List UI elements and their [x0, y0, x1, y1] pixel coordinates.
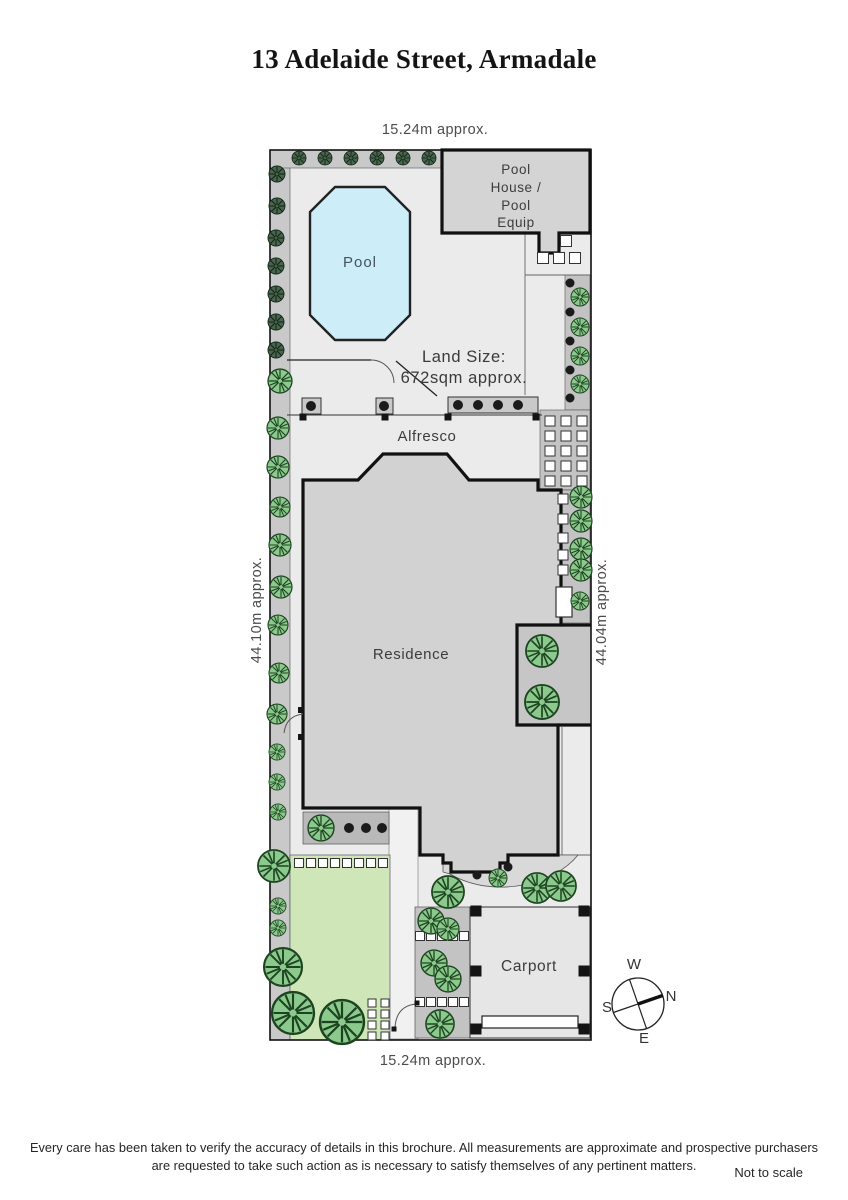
- dark-tree-icon: [370, 151, 384, 165]
- tree-icon: [269, 663, 289, 683]
- carport-slab: [482, 1016, 578, 1028]
- post-marker: [382, 414, 389, 421]
- tree-icon: [258, 850, 290, 882]
- paver-stone: [379, 859, 388, 868]
- site-plan-drawing: [0, 0, 848, 1200]
- shrub-dot: [361, 823, 371, 833]
- post-marker: [471, 906, 482, 917]
- tree-icon: [269, 744, 285, 760]
- paver-stone: [368, 1032, 376, 1040]
- tree-icon: [267, 704, 287, 724]
- post-marker: [445, 414, 452, 421]
- land-size-label: Land Size: 672sqm approx.: [354, 347, 574, 388]
- dimension-right: 44.04m approx.: [592, 512, 612, 712]
- dark-tree-icon: [292, 151, 306, 165]
- dark-tree-icon: [422, 151, 436, 165]
- compass-rose: [612, 978, 664, 1030]
- shrub-dot: [379, 401, 389, 411]
- paver-stone: [368, 1021, 376, 1029]
- paver-stone: [295, 859, 304, 868]
- tree-icon: [267, 456, 289, 478]
- dark-tree-icon: [268, 258, 284, 274]
- disclaimer-text: Every care has been taken to verify the …: [0, 1139, 848, 1175]
- paver-stone: [561, 431, 571, 441]
- pool-house-label: Pool House / Pool Equip: [456, 161, 576, 232]
- paver-stone: [460, 998, 469, 1007]
- tree-icon: [308, 815, 334, 841]
- compass-north-needle: [638, 996, 663, 1005]
- shrub-dot: [566, 394, 575, 403]
- paver-stone: [367, 859, 376, 868]
- dimension-top: 15.24m approx.: [335, 120, 535, 140]
- paver-stone: [561, 416, 571, 426]
- tree-icon: [526, 635, 558, 667]
- dark-tree-icon: [268, 314, 284, 330]
- compass-west-label: W: [623, 956, 645, 974]
- paver-stone: [381, 999, 389, 1007]
- dark-tree-icon: [268, 230, 284, 246]
- pool-label: Pool: [310, 254, 410, 271]
- dark-tree-icon: [268, 342, 284, 358]
- paver-stone: [343, 859, 352, 868]
- paver-stone: [561, 446, 571, 456]
- post-marker: [298, 707, 304, 713]
- tree-icon: [270, 804, 286, 820]
- tree-icon: [426, 1010, 454, 1038]
- paver-stone: [561, 461, 571, 471]
- tree-icon: [437, 918, 459, 940]
- paver-stone: [449, 998, 458, 1007]
- alfresco-label: Alfresco: [352, 428, 502, 445]
- shrub-dot: [306, 401, 316, 411]
- paver-stone: [416, 932, 425, 941]
- tree-icon: [570, 538, 592, 560]
- paver-stone: [545, 431, 555, 441]
- tree-icon: [571, 592, 589, 610]
- shrub-dot: [566, 279, 575, 288]
- post-marker: [298, 734, 304, 740]
- dark-tree-icon: [269, 166, 285, 182]
- tree-icon: [432, 876, 464, 908]
- tree-icon: [268, 615, 288, 635]
- paver-stone: [538, 253, 549, 264]
- dark-tree-icon: [396, 151, 410, 165]
- shrub-dot: [377, 823, 387, 833]
- shrub-dot: [473, 400, 483, 410]
- paver-stone: [558, 514, 568, 524]
- shrub-dot: [504, 863, 513, 872]
- compass-north-label: N: [660, 988, 682, 1006]
- tree-icon: [570, 486, 592, 508]
- post-marker: [579, 906, 590, 917]
- carport-label: Carport: [469, 958, 589, 976]
- side-gate: [556, 587, 572, 617]
- post-marker: [579, 1024, 590, 1035]
- shrub-dot: [453, 400, 463, 410]
- paver-stone: [577, 416, 587, 426]
- paver-stone: [577, 446, 587, 456]
- paver-stone: [438, 998, 447, 1007]
- tree-icon: [489, 869, 507, 887]
- paver-stone: [381, 1010, 389, 1018]
- compass-south-label: S: [596, 999, 618, 1017]
- paver-stone: [577, 431, 587, 441]
- dark-tree-icon: [344, 151, 358, 165]
- post-marker: [471, 1024, 482, 1035]
- shrub-dot: [566, 337, 575, 346]
- paver-stone: [558, 550, 568, 560]
- paver-stone: [554, 253, 565, 264]
- paver-stone: [381, 1021, 389, 1029]
- paver-stone: [577, 476, 587, 486]
- compass-east-label: E: [633, 1030, 655, 1048]
- tree-icon: [269, 534, 291, 556]
- shrub-dot: [566, 308, 575, 317]
- tree-icon: [571, 288, 589, 306]
- site-plan-page: 13 Adelaide Street, Armadale: [0, 0, 848, 1200]
- post-marker: [300, 414, 307, 421]
- paver-stone: [355, 859, 364, 868]
- paver-stone: [460, 932, 469, 941]
- paver-stone: [368, 1010, 376, 1018]
- tree-icon: [320, 1000, 364, 1044]
- post-marker: [415, 1001, 420, 1006]
- paver-stone: [558, 494, 568, 504]
- tree-icon: [270, 920, 286, 936]
- paver-stone: [319, 859, 328, 868]
- paver-stone: [545, 476, 555, 486]
- post-marker: [533, 414, 540, 421]
- tree-icon: [570, 559, 592, 581]
- dark-tree-icon: [318, 151, 332, 165]
- shrub-dot: [513, 400, 523, 410]
- dark-tree-icon: [269, 198, 285, 214]
- paver-stone: [558, 565, 568, 575]
- paver-stone: [381, 1032, 389, 1040]
- dimension-left: 44.10m approx.: [247, 510, 267, 710]
- tree-icon: [435, 966, 461, 992]
- tree-icon: [264, 948, 302, 986]
- paver-stone: [570, 253, 581, 264]
- paver-stone: [577, 461, 587, 471]
- dimension-bottom: 15.24m approx.: [333, 1051, 533, 1071]
- paver-stone: [545, 446, 555, 456]
- tree-icon: [570, 510, 592, 532]
- tree-icon: [269, 774, 285, 790]
- post-marker: [392, 1027, 397, 1032]
- tree-icon: [546, 871, 576, 901]
- paver-stone: [427, 998, 436, 1007]
- tree-icon: [270, 497, 290, 517]
- scale-note: Not to scale: [734, 1165, 803, 1180]
- dark-tree-icon: [268, 286, 284, 302]
- tree-icon: [267, 417, 289, 439]
- tree-icon: [270, 898, 286, 914]
- tree-icon: [525, 685, 559, 719]
- residence-label: Residence: [336, 646, 486, 663]
- paver-stone: [545, 461, 555, 471]
- tree-icon: [272, 992, 314, 1034]
- paver-stone: [561, 476, 571, 486]
- paver-stone: [558, 533, 568, 543]
- paver-stone: [561, 236, 572, 247]
- paver-stone: [545, 416, 555, 426]
- tree-icon: [571, 318, 589, 336]
- shrub-dot: [344, 823, 354, 833]
- tree-icon: [270, 576, 292, 598]
- paver-stone: [331, 859, 340, 868]
- shrub-dot: [473, 871, 482, 880]
- paver-stone: [368, 999, 376, 1007]
- tree-icon: [268, 369, 292, 393]
- paver-stone: [307, 859, 316, 868]
- shrub-dot: [493, 400, 503, 410]
